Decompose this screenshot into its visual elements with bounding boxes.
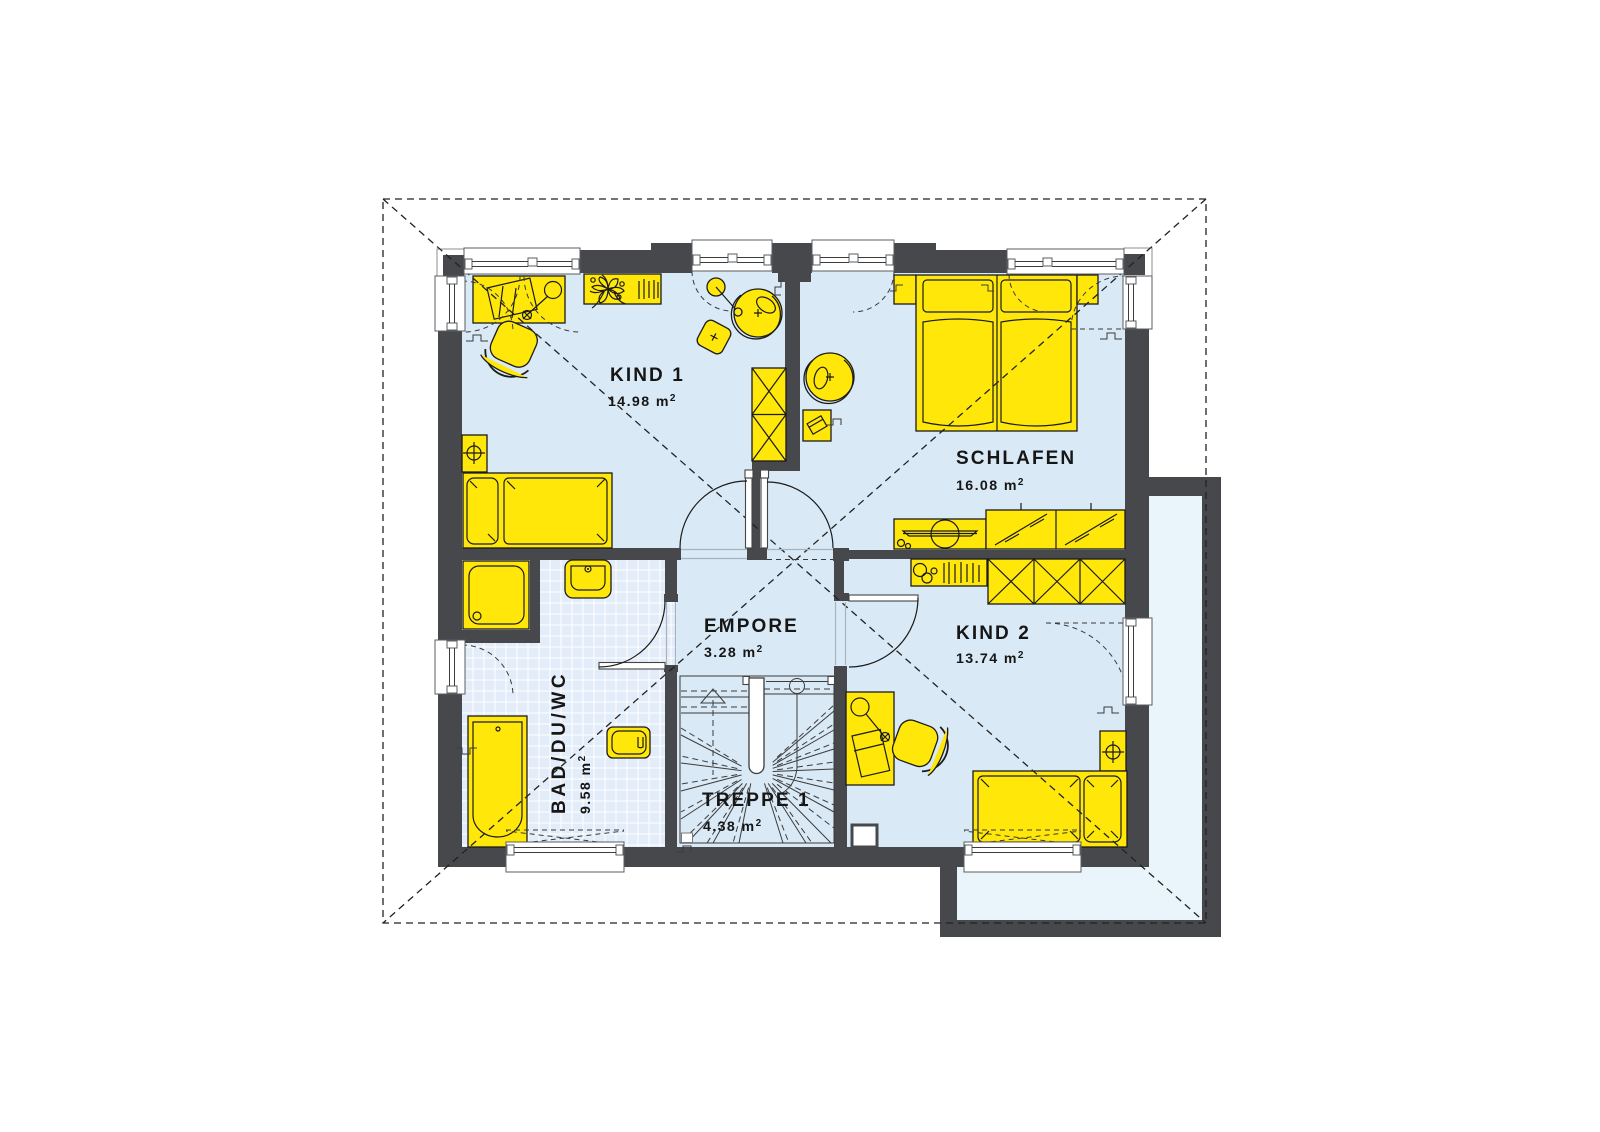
- svg-text:BAD/DU/WC: BAD/DU/WC: [549, 671, 570, 814]
- svg-text:TREPPE 1: TREPPE 1: [702, 790, 811, 811]
- svg-text:9.58 m2: 9.58 m2: [577, 755, 594, 814]
- svg-text:16.08 m2: 16.08 m2: [956, 477, 1024, 494]
- svg-text:KIND 2: KIND 2: [956, 623, 1031, 644]
- svg-text:SCHLAFEN: SCHLAFEN: [956, 448, 1076, 469]
- svg-text:14.98 m2: 14.98 m2: [608, 393, 676, 410]
- svg-text:EMPORE: EMPORE: [704, 616, 799, 637]
- svg-text:KIND 1: KIND 1: [610, 365, 685, 386]
- svg-text:4.38 m2: 4.38 m2: [703, 818, 762, 835]
- svg-text:3.28 m2: 3.28 m2: [704, 644, 763, 661]
- svg-text:13.74 m2: 13.74 m2: [956, 650, 1024, 667]
